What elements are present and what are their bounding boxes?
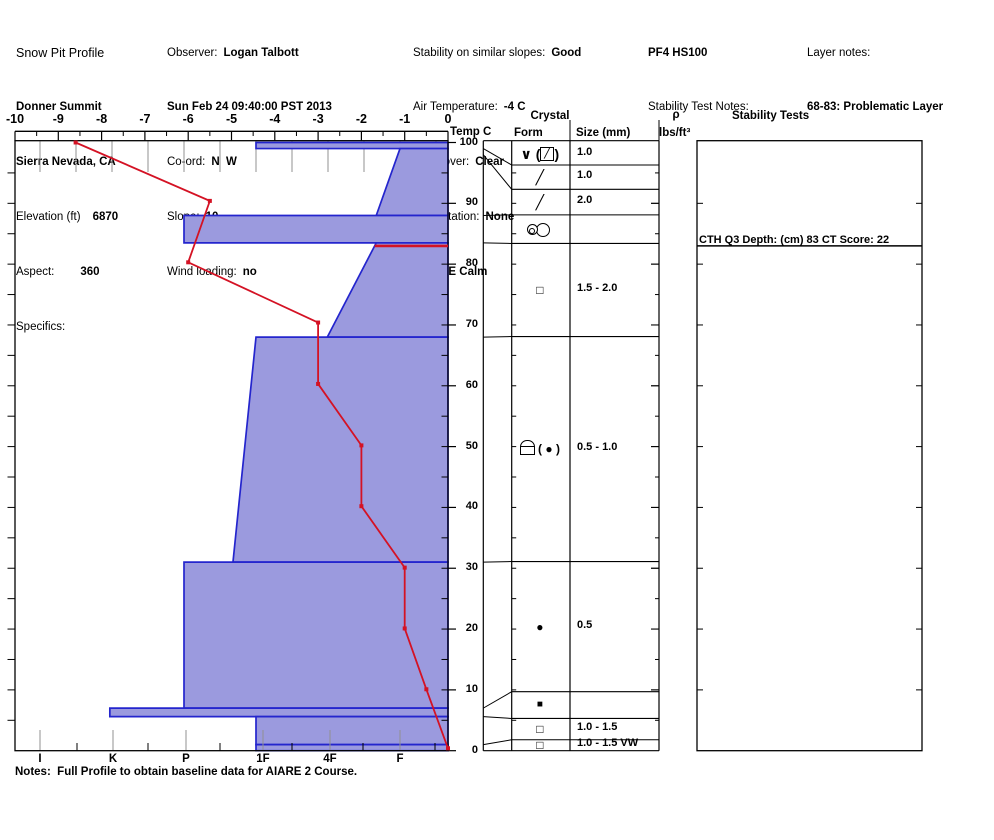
profile-chart-canvas xyxy=(0,0,994,840)
layer-leader-line xyxy=(483,215,511,216)
size-header: Size (mm) xyxy=(576,127,630,139)
stability-test-result: CTH Q3 Depth: (cm) 83 CT Score: 22 xyxy=(699,234,889,246)
temp-tick-label: -6 xyxy=(168,112,208,126)
temperature-point xyxy=(403,626,407,630)
temperature-point xyxy=(359,504,363,508)
boxed-slash-icon: ╱ xyxy=(540,147,554,161)
layer-leader-line xyxy=(483,740,511,745)
hardness-tick-label: 1F xyxy=(251,753,275,765)
temperature-point xyxy=(208,199,212,203)
temperature-point xyxy=(424,687,428,691)
temperature-point xyxy=(316,382,320,386)
hardness-tick-label: P xyxy=(174,753,198,765)
crystal-size-cell: 1.0 - 1.5 VW xyxy=(577,737,638,749)
crystal-size-cell: 0.5 - 1.0 xyxy=(577,441,617,453)
snow-layer-3 xyxy=(327,243,448,337)
snow-layer-1 xyxy=(376,149,448,216)
stability-tests-box xyxy=(697,141,922,751)
temp-tick-label: -4 xyxy=(255,112,295,126)
depth-tick-label: 90 xyxy=(446,196,478,208)
snow-layer-5 xyxy=(184,562,448,708)
depth-tick-label: 80 xyxy=(446,257,478,269)
temp-tick-label: -9 xyxy=(38,112,78,126)
crystal-form-cell: ● xyxy=(514,618,566,636)
layer-leader-line xyxy=(483,149,511,165)
notes-line: Notes: Full Profile to obtain baseline d… xyxy=(15,766,357,778)
hardness-tick-label: I xyxy=(28,753,52,765)
crystal-header: Crystal xyxy=(490,110,610,122)
snow-layer-0 xyxy=(256,143,448,149)
hardness-tick-label: 4F xyxy=(318,753,342,765)
crystal-size-cell: 2.0 xyxy=(577,194,592,206)
layer-leader-line xyxy=(483,717,511,719)
temperature-point xyxy=(74,141,78,145)
snow-layer-6 xyxy=(110,708,448,717)
temp-tick-label: 0 xyxy=(428,112,468,126)
crystal-size-cell: 0.5 xyxy=(577,619,592,631)
temperature-point xyxy=(403,566,407,570)
crystal-form-cell: ╱ xyxy=(514,168,566,186)
depth-tick-label: 50 xyxy=(446,440,478,452)
temp-tick-label: -5 xyxy=(212,112,252,126)
grain-cluster-icon xyxy=(527,222,553,236)
depth-tick-label: 0 xyxy=(446,744,478,756)
temperature-point xyxy=(186,260,190,264)
temperature-point xyxy=(359,443,363,447)
snow-layer-8 xyxy=(256,745,448,751)
snow-layer-2 xyxy=(184,215,448,242)
crystal-form-cell: ( ● ) xyxy=(514,440,566,458)
depth-tick-label: 40 xyxy=(446,500,478,512)
depth-tick-label: 30 xyxy=(446,561,478,573)
crystal-form-cell: □ xyxy=(514,736,566,754)
layer-leader-line xyxy=(483,562,511,563)
crystal-size-cell: 1.0 - 1.5 xyxy=(577,721,617,733)
form-header: Form xyxy=(514,127,543,139)
temp-tick-label: -8 xyxy=(82,112,122,126)
stability-tests-header: Stability Tests xyxy=(732,110,809,122)
layer-leader-line xyxy=(483,337,511,338)
crystal-form-cell: □ xyxy=(514,281,566,299)
temperature-point xyxy=(316,321,320,325)
snow-pit-profile-report: Snow Pit Profile Donner Summit Sierra Ne… xyxy=(0,0,994,840)
snow-layer-4 xyxy=(233,337,448,562)
melt-freeze-crust-icon xyxy=(520,440,535,455)
temp-tick-label: -10 xyxy=(0,112,35,126)
temp-tick-label: -7 xyxy=(125,112,165,126)
temp-tick-label: -3 xyxy=(298,112,338,126)
hardness-tick-label: K xyxy=(101,753,125,765)
crystal-size-cell: 1.5 - 2.0 xyxy=(577,282,617,294)
depth-tick-label: 100 xyxy=(446,136,478,148)
depth-tick-label: 20 xyxy=(446,622,478,634)
crystal-form-cell: ∨ (╱) xyxy=(514,145,566,163)
crystal-size-cell: 1.0 xyxy=(577,169,592,181)
crystal-form-cell: ╱ xyxy=(514,193,566,211)
temp-tick-label: -1 xyxy=(385,112,425,126)
temp-tick-label: -2 xyxy=(341,112,381,126)
layer-leader-line xyxy=(483,243,511,244)
density-units: lbs/ft³ xyxy=(659,127,690,139)
snow-layer-7 xyxy=(256,717,448,745)
hardness-tick-label: F xyxy=(388,753,412,765)
density-header: ρ xyxy=(668,109,684,121)
depth-tick-label: 10 xyxy=(446,683,478,695)
depth-tick-label: 60 xyxy=(446,379,478,391)
crystal-form-cell xyxy=(514,220,566,238)
layer-leader-line xyxy=(483,155,511,190)
crystal-size-cell: 1.0 xyxy=(577,146,592,158)
crystal-form-cell: ■ xyxy=(514,696,566,714)
layer-leader-line xyxy=(483,692,511,708)
depth-tick-label: 70 xyxy=(446,318,478,330)
